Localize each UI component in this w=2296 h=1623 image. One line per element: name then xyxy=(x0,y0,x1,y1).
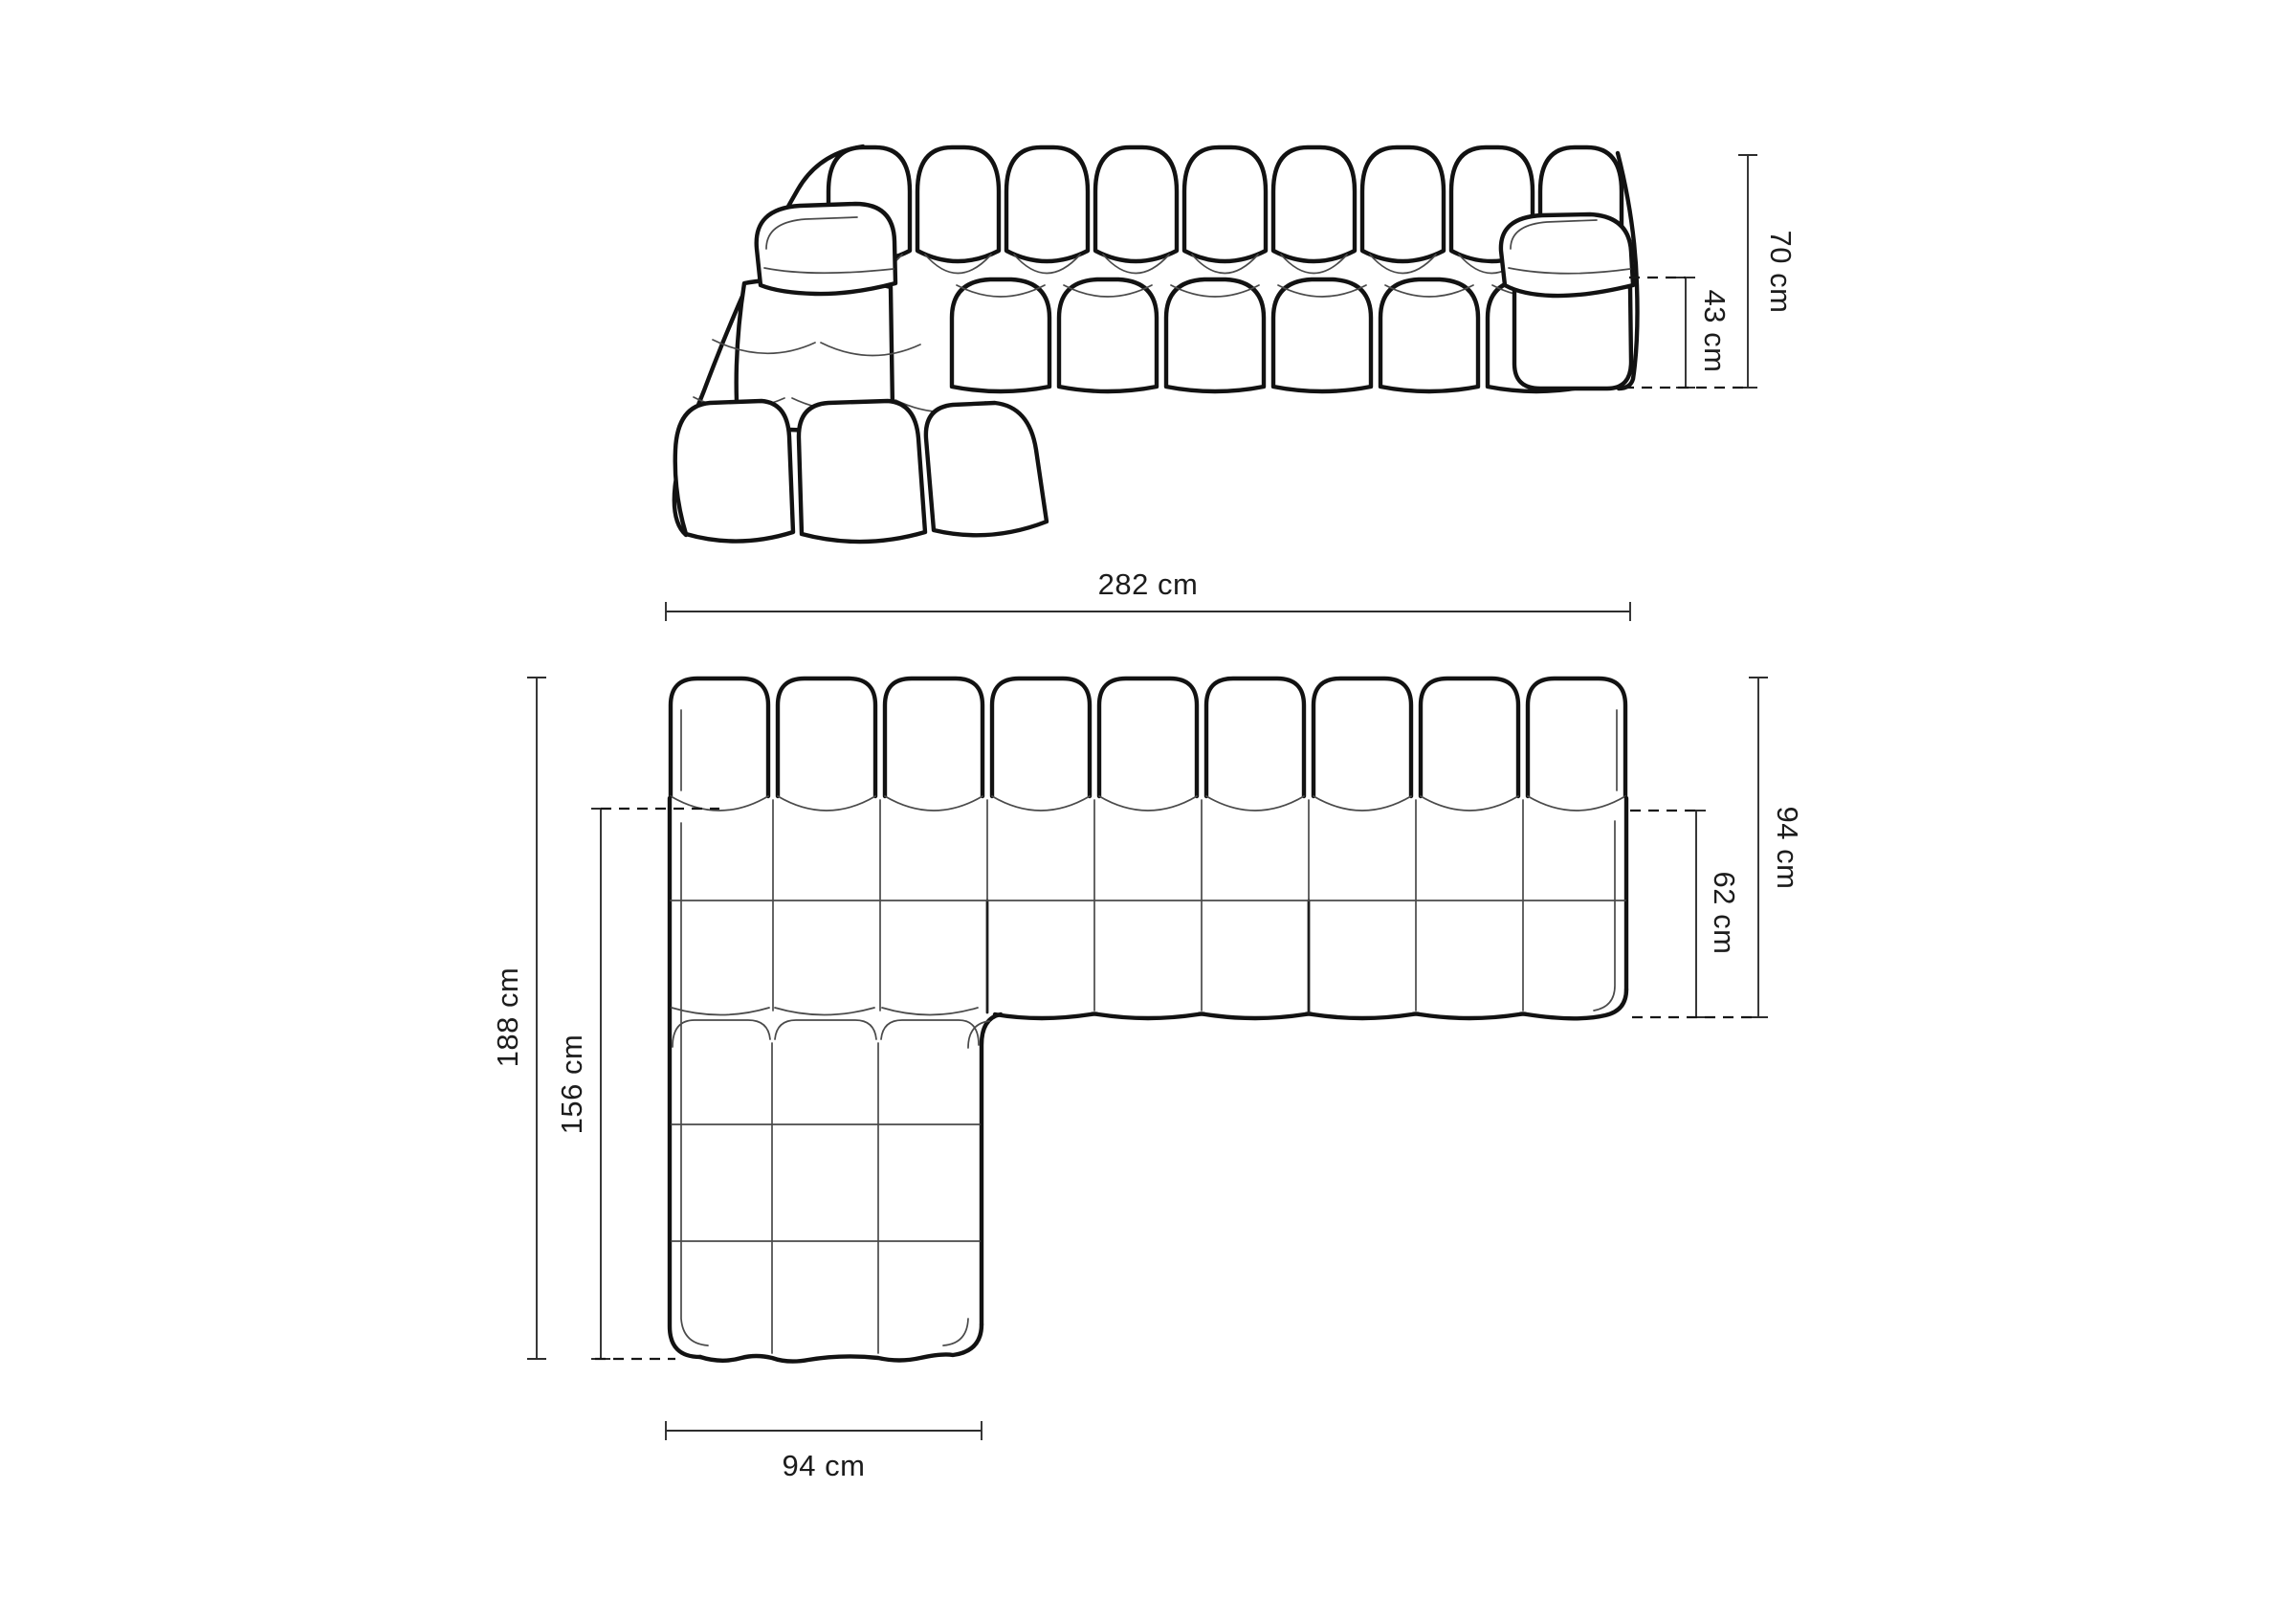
front-view-drawing xyxy=(674,146,1638,542)
plan-view-drawing xyxy=(670,678,1626,1362)
dim-label-seat-depth: 62 cm xyxy=(1707,872,1741,955)
diagram-drawing xyxy=(0,0,2296,1623)
front-left-armrest xyxy=(737,204,895,433)
dim-label-length-total: 188 cm xyxy=(491,967,525,1068)
sofa-dimension-diagram: 282 cm 70 cm 43 cm 94 cm 62 cm 188 cm 15… xyxy=(0,0,2296,1623)
dim-label-height-seat: 43 cm xyxy=(1697,290,1732,373)
dim-label-height-total: 70 cm xyxy=(1763,231,1798,314)
dim-label-chaise-length: 156 cm xyxy=(555,1034,589,1135)
dim-label-width-total: 282 cm xyxy=(1098,567,1199,602)
dim-label-chaise-width: 94 cm xyxy=(783,1449,866,1483)
plan-seat-seams xyxy=(671,800,1625,1345)
front-seat-cushions xyxy=(952,279,1585,391)
front-right-armrest xyxy=(1501,214,1633,389)
plan-chaise xyxy=(672,1008,989,1353)
dim-label-depth-total: 94 cm xyxy=(1770,807,1804,890)
plan-backrest-modules xyxy=(671,678,1625,811)
plan-outline xyxy=(670,798,1626,1362)
